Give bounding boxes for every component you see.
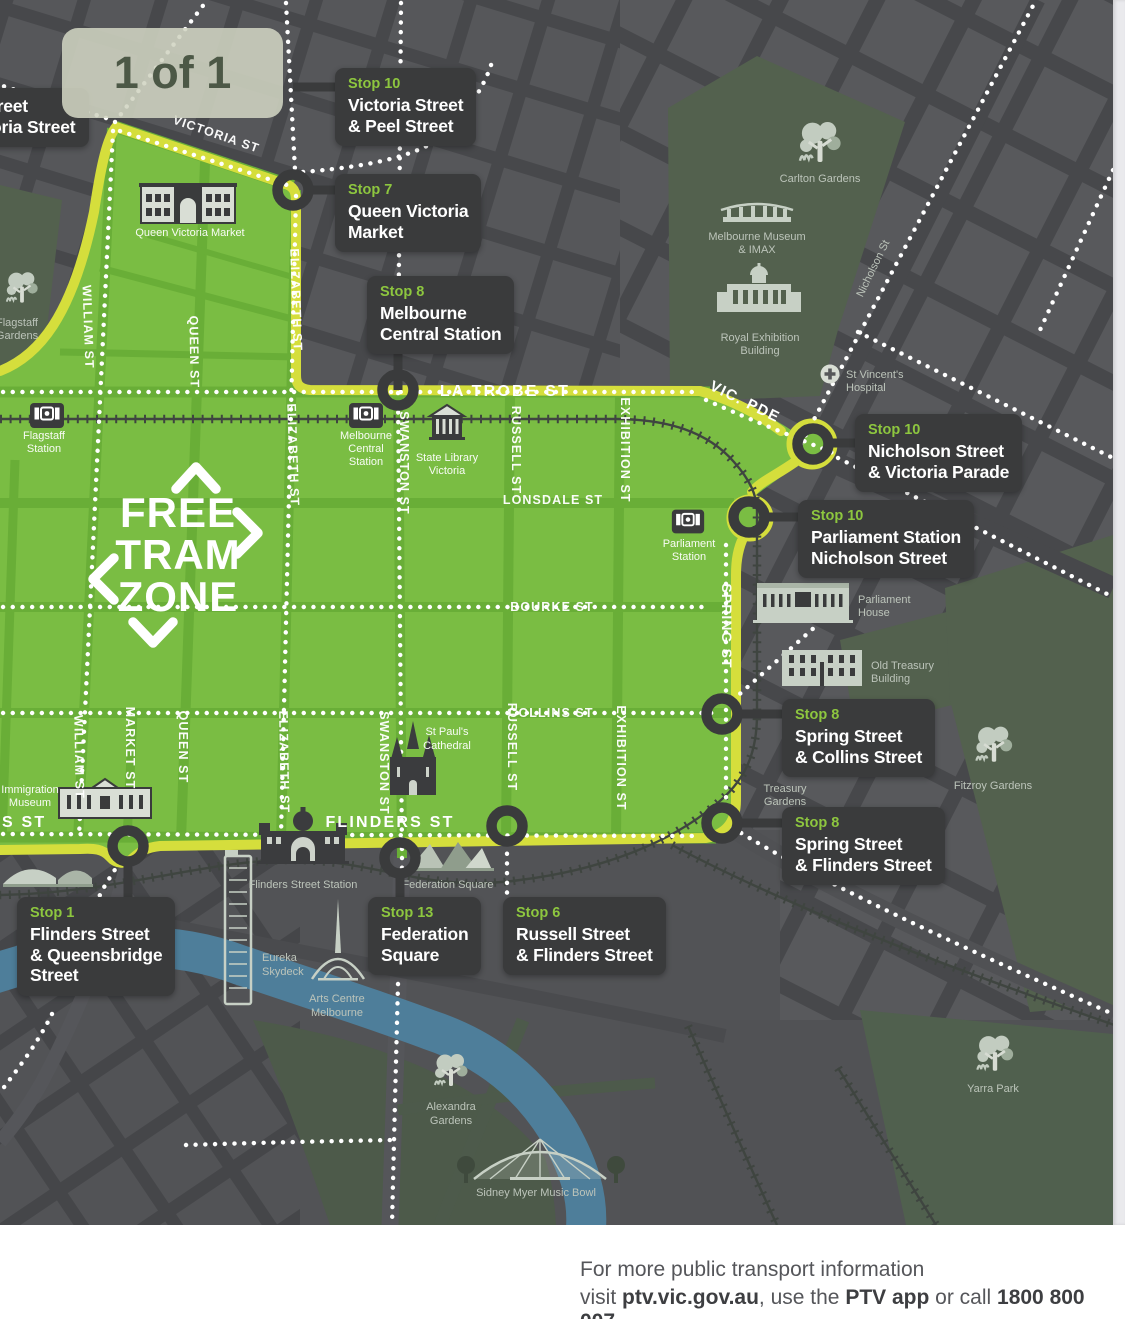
stop-badge: Stop 6 — [516, 905, 653, 921]
flagstaff-gardens-label: Gardens — [0, 330, 39, 342]
stop-label-flinders-queensbridge: Stop 1 Flinders Street & Queensbridge St… — [17, 897, 175, 996]
st-vincents-hospital-icon — [821, 365, 840, 384]
stop-label-victoria-peel: Stop 10 Victoria Street & Peel Street — [335, 68, 476, 146]
stop-name-line: & Flinders Street — [516, 945, 653, 966]
street-label-william-st-upper: WILLIAM ST — [80, 285, 97, 369]
immigration-museum-label: Museum — [9, 797, 51, 809]
stop-label-nicholson-victoria-pde: Stop 10 Nicholson Street & Victoria Para… — [855, 414, 1022, 492]
alexandra-gardens-label: Gardens — [430, 1115, 473, 1127]
stop-label-parliament-nicholson: Stop 10 Parliament Station Nicholson Str… — [798, 500, 974, 578]
stop-badge: Stop 1 — [30, 905, 162, 921]
melbourne-central-label: Station — [349, 456, 383, 468]
federation-square-label: Federation Square — [402, 879, 493, 891]
stop-label-spring-flinders: Stop 8 Spring Street & Flinders Street — [782, 807, 945, 885]
parliament-house-label: Parliament — [858, 594, 911, 606]
street-label-swanston-st-lower: SWANSTON ST — [377, 711, 391, 815]
flagstaff-station-label: Station — [27, 443, 61, 455]
stop-name-line: Nicholson Street — [811, 548, 961, 569]
parliament-station-label: Parliament — [663, 538, 716, 550]
melbourne-museum-label: & IMAX — [738, 244, 776, 256]
stop-badge: Stop 8 — [795, 707, 922, 723]
royal-exhibition-label: Royal Exhibition — [721, 332, 800, 344]
parliament-station-icon — [672, 510, 704, 534]
stop-name-line: Spring Street — [795, 834, 932, 855]
parliament-house-icon — [753, 583, 853, 623]
stop-badge: Stop 10 — [348, 76, 463, 92]
melbourne-museum-label: Melbourne Museum — [708, 231, 805, 243]
st-vincents-label: St Vincent's — [846, 369, 904, 381]
stop-badge: Stop 10 — [868, 422, 1009, 438]
footer-contact-line: visit ptv.vic.gov.au, use the PTV app or… — [580, 1286, 1125, 1319]
carlton-gardens-label: Carlton Gardens — [780, 173, 861, 185]
arts-centre-label: Melbourne — [311, 1007, 363, 1019]
street-label-swanston-st-upper: SWANSTON ST — [397, 411, 411, 515]
stop-badge: Stop 8 — [380, 284, 501, 300]
stop-name-line: Flinders Street — [30, 924, 162, 945]
street-label-russell-st-upper: RUSSELL ST — [509, 406, 523, 495]
stop-name-line: & Peel Street — [348, 116, 463, 137]
zone-word-tram: TRAM — [115, 531, 240, 578]
parliament-house-label: House — [858, 607, 890, 619]
st-pauls-label: St Paul's — [425, 726, 469, 738]
street-label-william-st-lower: WILLIAM ST — [71, 715, 86, 799]
footer-text: visit — [580, 1286, 622, 1309]
parliament-station-label: Station — [672, 551, 706, 563]
stop-badge: Stop 10 — [811, 508, 961, 524]
arts-centre-label: Arts Centre — [309, 993, 365, 1005]
stop-name-line: Parliament Station — [811, 527, 961, 548]
stop-label-russell-flinders: Stop 6 Russell Street & Flinders Street — [503, 897, 666, 975]
melbourne-central-label: Central — [348, 443, 383, 455]
ptv-website-link[interactable]: ptv.vic.gov.au — [622, 1286, 759, 1309]
flinders-street-station-label: Flinders Street Station — [249, 879, 358, 891]
flagstaff-gardens-label: Flagstaff — [0, 317, 39, 329]
scrollbar-gutter[interactable] — [1113, 0, 1125, 1225]
stop-name-line: Russell Street — [516, 924, 653, 945]
footer-text: or call — [929, 1286, 997, 1309]
zone-word-free: FREE — [120, 489, 236, 536]
stop-name-line: Market — [348, 222, 468, 243]
stop-label-spring-collins: Stop 8 Spring Street & Collins Street — [782, 699, 935, 777]
street-label-queen-st-upper: QUEEN ST — [186, 315, 201, 388]
queen-victoria-market-icon — [139, 183, 237, 223]
flagstaff-station-label: Flagstaff — [23, 430, 66, 442]
old-treasury-label: Old Treasury — [871, 660, 934, 672]
ptv-app-text: PTV app — [845, 1286, 929, 1309]
street-label-spring-st: SPRING ST — [719, 583, 735, 668]
stop-label-melbourne-central: Stop 8 Melbourne Central Station — [367, 276, 514, 354]
page-indicator: 1 of 1 — [62, 28, 283, 118]
old-treasury-building-icon — [782, 650, 862, 686]
ptv-free-tram-zone-map-page: VICTORIA ST WILLIAM ST WILLIAM ST QUEEN … — [0, 0, 1125, 1319]
yarra-park-label: Yarra Park — [967, 1083, 1019, 1095]
street-label-collins-st: COLLINS ST — [508, 706, 593, 720]
immigration-museum-label: Immigration — [1, 784, 58, 796]
stop-name-line: & Collins Street — [795, 747, 922, 768]
stop-name-line: Melbourne — [380, 303, 501, 324]
stop-label-queen-victoria-market: Stop 7 Queen Victoria Market — [335, 174, 481, 252]
royal-exhibition-label: Building — [740, 345, 779, 357]
stop-name-line: & Victoria Parade — [868, 462, 1009, 483]
fitzroy-gardens-label: Fitzroy Gardens — [954, 780, 1033, 792]
alexandra-gardens-label: Alexandra — [426, 1101, 476, 1113]
stop-name-line: Victoria Street — [348, 95, 463, 116]
street-label-queen-st-lower: QUEEN ST — [176, 711, 190, 784]
queen-victoria-market-label: Queen Victoria Market — [135, 227, 244, 239]
stop-label-federation-square: Stop 13 Federation Square — [368, 897, 481, 975]
stop-name-line: Nicholson Street — [868, 441, 1009, 462]
street-label-la-trobe-st: LA TROBE ST — [440, 383, 570, 400]
stop-name-line: & Queensbridge — [30, 945, 162, 966]
footer-text: . — [615, 1310, 621, 1319]
stop-name-line: Street — [30, 965, 162, 986]
state-library-label: Victoria — [429, 465, 466, 477]
melbourne-central-station-icon — [349, 403, 383, 428]
street-label-lonsdale-st: LONSDALE ST — [503, 493, 603, 507]
street-label-exhibition-st-upper: EXHIBITION ST — [618, 397, 632, 502]
melbourne-central-label: Melbourne — [340, 430, 392, 442]
stop-name-line: Square — [381, 945, 468, 966]
street-label-flinders-st: FLINDERS ST — [325, 814, 454, 831]
street-label-elizabeth-st-lower: ELIZABETH ST — [276, 710, 292, 813]
stop-name-line: & Flinders Street — [795, 855, 932, 876]
stop-name-line: Central Station — [380, 324, 501, 345]
footer-info-line: For more public transport information — [580, 1258, 924, 1282]
sidney-myer-music-bowl-label: Sidney Myer Music Bowl — [476, 1187, 596, 1199]
footer-text: , use the — [759, 1286, 845, 1309]
eureka-skydeck-label: Skydeck — [262, 966, 304, 978]
stop-badge: Stop 7 — [348, 182, 468, 198]
stop-name-line: oria Street — [0, 117, 75, 138]
stop-name-line: Spring Street — [795, 726, 922, 747]
old-treasury-label: Building — [871, 673, 910, 685]
st-vincents-label: Hospital — [846, 382, 886, 394]
stop-name-line: Federation — [381, 924, 468, 945]
state-library-label: State Library — [416, 452, 479, 464]
flagstaff-station-icon — [30, 403, 64, 428]
st-pauls-label: Cathedral — [423, 740, 471, 752]
map-canvas[interactable]: VICTORIA ST WILLIAM ST WILLIAM ST QUEEN … — [0, 0, 1125, 1225]
zone-word-zone: ZONE — [118, 573, 239, 620]
street-label-exhibition-st-lower: EXHIBITION ST — [614, 705, 628, 810]
stop-badge: Stop 13 — [381, 905, 468, 921]
eureka-skydeck-label: Eureka — [262, 952, 298, 964]
street-label-bourke-st: BOURKE ST — [510, 600, 594, 614]
treasury-gardens-label: Treasury — [764, 783, 807, 795]
street-label-market-st: MARKET ST — [123, 707, 137, 790]
street-label-flinders-st-partial: S ST — [2, 814, 46, 831]
stop-badge: Stop 8 — [795, 815, 932, 831]
stop-name-line: Queen Victoria — [348, 201, 468, 222]
